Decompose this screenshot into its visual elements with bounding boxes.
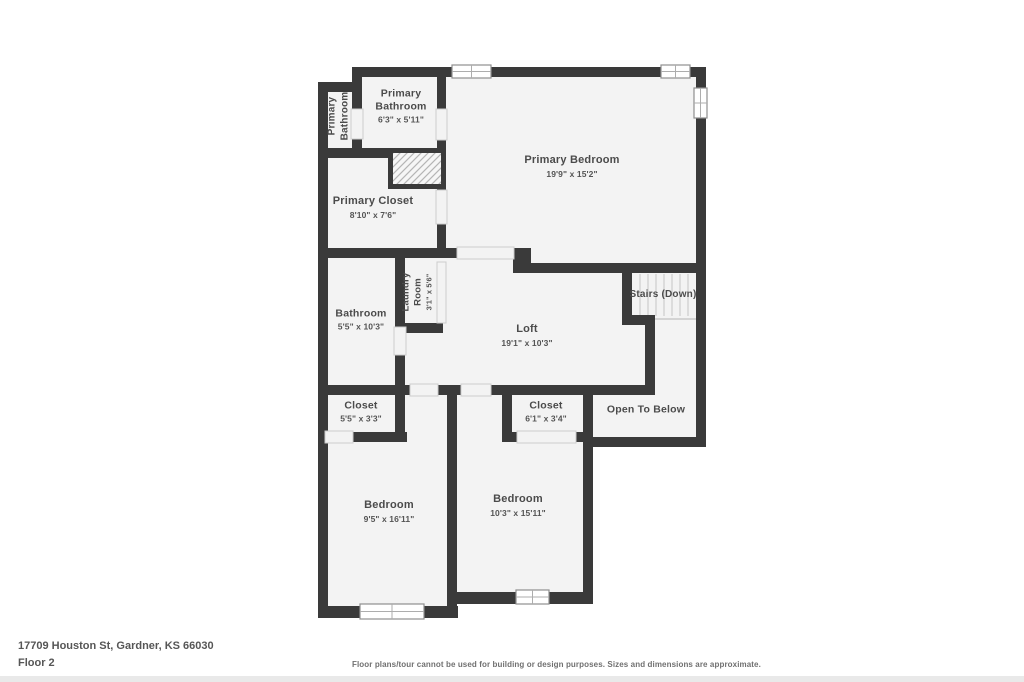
room-label-primary-bathroom-wc: Primary Bathroom (327, 87, 352, 145)
floor-number-label: Floor 2 (18, 657, 55, 669)
floor-plan-page: Primary Bathroom Primary Bathroom 6'3" x… (0, 0, 1024, 682)
room-label-primary-bedroom: Primary Bedroom 19'9" x 15'2" (524, 154, 619, 180)
room-label-primary-closet: Primary Closet 8'10" x 7'6" (333, 195, 413, 221)
room-label-open-to-below: Open To Below (607, 403, 685, 416)
room-label-stairs-down: Stairs (Down) (629, 289, 696, 302)
room-label-bathroom: Bathroom 5'5" x 10'3" (335, 307, 386, 332)
disclaimer-text: Floor plans/tour cannot be used for buil… (352, 660, 761, 669)
room-label-laundry-room: Laundry Room 3'1" x 5'6" (401, 266, 436, 318)
room-label-primary-bathroom: Primary Bathroom 6'3" x 5'11" (364, 88, 438, 127)
room-label-bedroom-1: Bedroom 9'5" x 16'11" (364, 499, 415, 525)
room-label-loft: Loft 19'1" x 10'3" (501, 323, 552, 349)
room-label-closet-1: Closet 5'5" x 3'3" (340, 399, 382, 424)
property-address: 17709 Houston St, Gardner, KS 66030 (18, 640, 214, 652)
room-label-bedroom-2: Bedroom 10'3" x 15'11" (490, 493, 546, 519)
shower-hatch-area (393, 153, 441, 184)
page-bottom-edge (0, 676, 1024, 682)
room-label-closet-2: Closet 6'1" x 3'4" (525, 399, 567, 424)
